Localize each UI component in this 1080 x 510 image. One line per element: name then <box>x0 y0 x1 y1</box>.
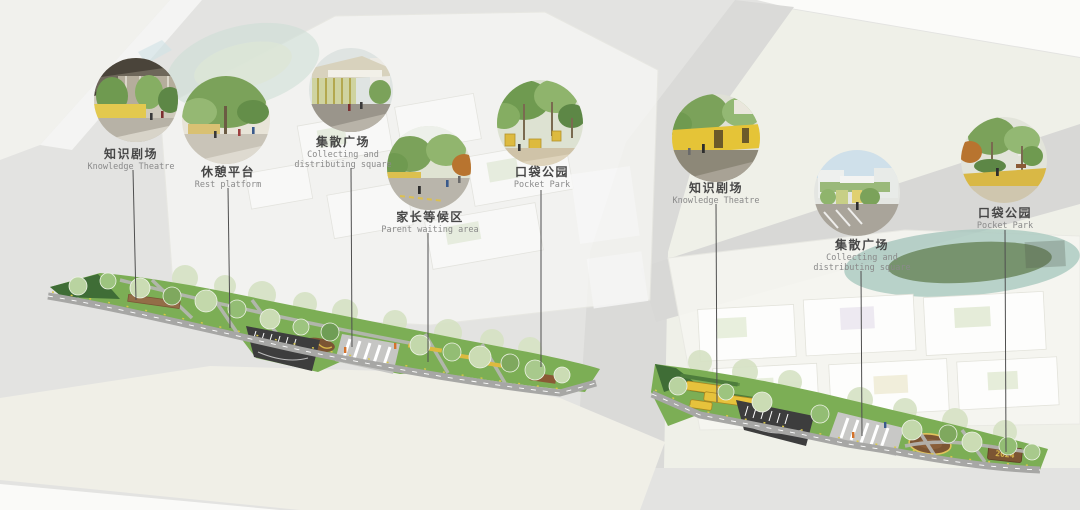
site-plan-graphics: 2024 <box>0 0 1080 510</box>
photo-collecting-square-west <box>309 48 393 132</box>
landscape-callout-diagram: 2024 <box>0 0 1080 510</box>
photo-collecting-square-east <box>814 150 900 236</box>
